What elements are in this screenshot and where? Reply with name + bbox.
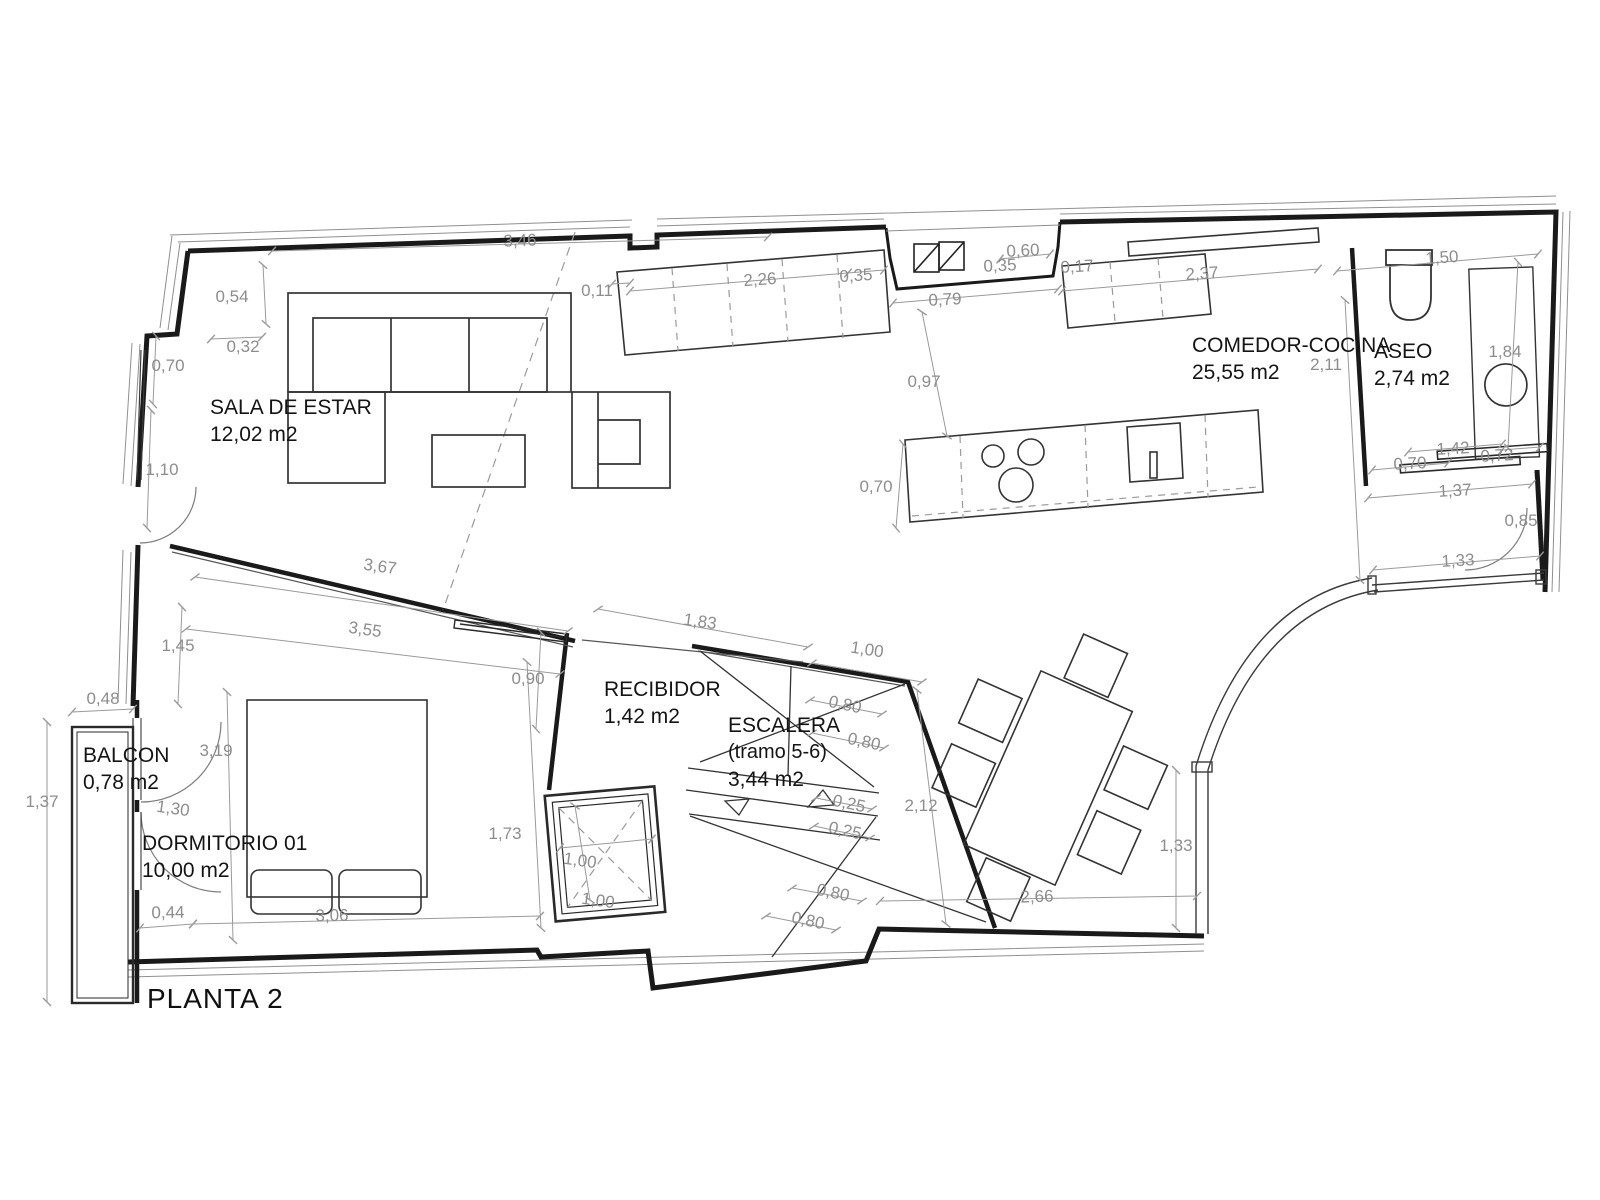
door-arcs <box>140 487 1527 892</box>
balcony <box>72 700 141 1003</box>
hob-burner <box>999 468 1033 502</box>
pillow <box>251 870 332 914</box>
chair <box>1077 811 1140 874</box>
floor-plan-drawing <box>0 0 1600 1200</box>
pillow <box>339 870 421 914</box>
bed <box>247 700 427 914</box>
kitchen-counter-left <box>617 250 890 355</box>
section-line <box>443 232 575 610</box>
hob-burner <box>982 445 1004 467</box>
sink-tap <box>1150 452 1157 478</box>
armchair <box>572 392 670 488</box>
kitchen-island <box>905 410 1263 522</box>
toilet <box>1386 250 1432 320</box>
niche-window-icon <box>886 225 1060 272</box>
hob-burner <box>1018 439 1044 465</box>
stairs <box>686 651 986 957</box>
sofa <box>288 293 571 483</box>
kitchen-counter-right <box>1062 228 1319 328</box>
floor-plan-page: PLANTA 2 SALA DE ESTAR12,02 m2COMEDOR-CO… <box>0 0 1600 1200</box>
chair <box>1064 634 1127 697</box>
chair <box>967 858 1030 921</box>
washbasin <box>1469 267 1540 459</box>
stair-arrow-down <box>725 799 749 815</box>
curved-window-wall <box>1192 570 1546 934</box>
elevator <box>545 786 666 921</box>
coffee-table <box>432 435 525 487</box>
dimension-lines <box>47 237 1540 1002</box>
interior-walls <box>170 248 1366 928</box>
